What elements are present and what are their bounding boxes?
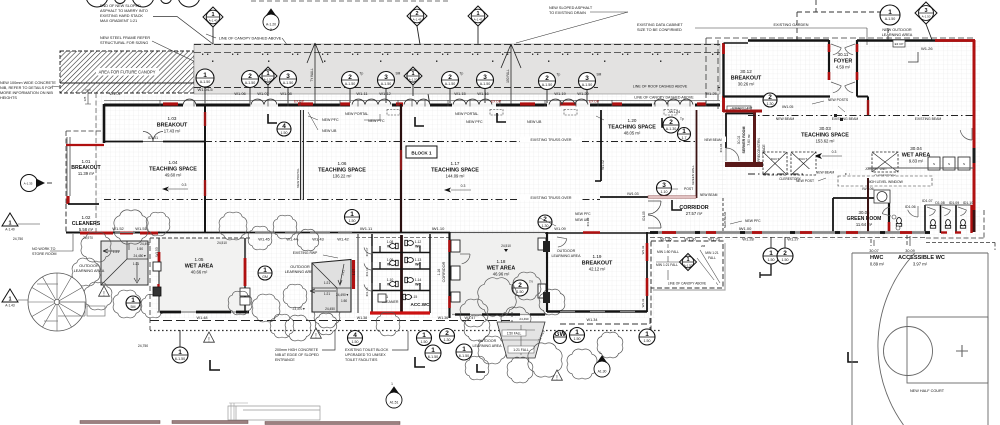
svg-text:A-1.50: A-1.50 [283, 81, 294, 85]
svg-text:5.58 m²: 5.58 m² [79, 227, 94, 232]
svg-text:2: 2 [415, 11, 418, 17]
svg-text:30.09: 30.09 [905, 249, 915, 253]
svg-text:A1.51: A1.51 [390, 401, 399, 405]
svg-text:ID1.15: ID1.15 [365, 287, 369, 296]
svg-text:W1.06: W1.06 [234, 91, 246, 96]
svg-text:30.04: 30.04 [910, 146, 922, 151]
svg-text:CORRIDOR: CORRIDOR [442, 261, 446, 282]
svg-text:NEW PFC: NEW PFC [745, 219, 761, 223]
svg-text:EXISTING GARDEN: EXISTING GARDEN [773, 23, 808, 27]
svg-text:1.14: 1.14 [415, 278, 422, 282]
svg-text:S: S [963, 162, 965, 166]
svg-text:3: 3 [384, 74, 388, 81]
svg-text:1:50: 1:50 [341, 299, 347, 303]
svg-text:A-1.20: A-1.20 [266, 23, 276, 27]
svg-text:1:21: 1:21 [113, 250, 119, 254]
svg-text:NEW 100mm WIDE CONCRETE: NEW 100mm WIDE CONCRETE [0, 81, 56, 85]
svg-text:1: 1 [178, 349, 182, 356]
svg-text:ID1.01: ID1.01 [148, 136, 158, 140]
svg-text:2: 2 [783, 250, 787, 257]
svg-text:LEARNING AREA: LEARNING AREA [882, 33, 913, 37]
svg-text:W1.45: W1.45 [258, 237, 270, 242]
svg-text:NEW BEAM: NEW BEAM [700, 193, 718, 197]
svg-text:2: 2 [545, 75, 549, 82]
svg-text:ASPHALT TO MARRY INTO: ASPHALT TO MARRY INTO [100, 9, 148, 13]
svg-text:W1.25: W1.25 [705, 91, 717, 96]
svg-text:24,490: 24,490 [519, 317, 529, 321]
svg-text:9.83 m²: 9.83 m² [909, 159, 924, 164]
svg-text:1.50: 1.50 [349, 219, 356, 223]
svg-text:Tp: Tp [557, 73, 561, 77]
svg-text:OUTDOOR: OUTDOOR [290, 265, 310, 269]
svg-text:GW: GW [554, 331, 566, 338]
svg-text:1.02: 1.02 [82, 215, 91, 220]
svg-text:W1.02: W1.02 [601, 160, 605, 170]
svg-text:1.13: 1.13 [415, 258, 422, 262]
svg-text:11.64 m²: 11.64 m² [856, 222, 873, 227]
svg-text:30.03: 30.03 [819, 126, 831, 131]
svg-text:A-1.50: A-1.50 [381, 82, 392, 86]
svg-text:W1.09: W1.09 [554, 226, 566, 231]
svg-text:1:21: 1:21 [324, 292, 330, 296]
svg-text:NEW SLOPED ASPHALT: NEW SLOPED ASPHALT [549, 6, 593, 10]
svg-text:EXISTING DATA CABINET: EXISTING DATA CABINET [637, 23, 683, 27]
svg-text:48.05 m²: 48.05 m² [624, 131, 641, 136]
svg-text:1:21: 1:21 [324, 281, 330, 285]
svg-text:1.50: 1.50 [281, 131, 288, 135]
svg-text:NIB, REFER TO DETAILS FOR: NIB, REFER TO DETAILS FOR [0, 86, 53, 90]
svg-text:1: 1 [431, 347, 435, 354]
svg-text:LEARNING AREA: LEARNING AREA [473, 344, 503, 348]
svg-text:1.17: 1.17 [451, 161, 460, 166]
svg-text:GREEN WALL: GREEN WALL [691, 165, 695, 185]
svg-text:27.57 m²: 27.57 m² [686, 211, 703, 216]
svg-text:125: 125 [83, 96, 87, 101]
svg-text:Tp: Tp [360, 72, 364, 76]
svg-text:LINE OF CANOPY DASHED ABOVE: LINE OF CANOPY DASHED ABOVE [219, 37, 282, 41]
svg-text:ID1.05: ID1.05 [642, 211, 646, 221]
svg-text:W1.42: W1.42 [337, 237, 349, 242]
svg-text:S: S [933, 162, 935, 166]
svg-text:1: 1 [575, 329, 579, 336]
svg-text:NEW PORTAL: NEW PORTAL [455, 112, 478, 116]
svg-text:1: 1 [411, 71, 414, 77]
svg-text:W1.08: W1.08 [280, 91, 292, 96]
svg-text:STORE ROOM: STORE ROOM [32, 252, 57, 256]
svg-text:ENTRANCE: ENTRANCE [275, 358, 295, 362]
svg-text:ID1.10: ID1.10 [963, 201, 973, 205]
svg-text:30.11: 30.11 [838, 52, 849, 57]
svg-text:1:21: 1:21 [133, 262, 139, 266]
svg-text:46.96 m²: 46.96 m² [493, 272, 510, 277]
svg-text:1.50: 1.50 [574, 337, 581, 341]
svg-text:A-1.45: A-1.45 [474, 17, 483, 21]
svg-text:1: 1 [682, 128, 686, 135]
svg-text:W1.01: W1.01 [109, 91, 121, 96]
svg-text:A-1.35: A-1.35 [24, 182, 33, 186]
svg-text:W1.11: W1.11 [356, 91, 368, 96]
svg-text:NIB AT EDGE OF SLOPED: NIB AT EDGE OF SLOPED [275, 353, 319, 357]
svg-text:24,750: 24,750 [138, 344, 148, 348]
svg-text:WC: WC [415, 263, 421, 267]
svg-text:ID1.09: ID1.09 [949, 201, 959, 205]
svg-text:MIN 1:50 FALL: MIN 1:50 FALL [657, 250, 679, 254]
svg-text:1.12: 1.12 [415, 240, 422, 244]
svg-text:30.07: 30.07 [869, 249, 879, 253]
svg-text:A-1.50: A-1.50 [542, 83, 553, 87]
svg-text:STRUCTURAL FOR SIZING: STRUCTURAL FOR SIZING [100, 41, 148, 45]
svg-text:W1.34: W1.34 [587, 318, 598, 322]
svg-text:1:50: 1:50 [137, 247, 143, 251]
svg-text:1: 1 [599, 351, 601, 355]
svg-text:A-1.30: A-1.30 [666, 127, 677, 131]
svg-text:W1.51: W1.51 [135, 226, 147, 231]
svg-text:NEW BEAM: NEW BEAM [723, 211, 727, 228]
svg-text:1:21 FALL: 1:21 FALL [513, 348, 529, 352]
svg-text:1: 1 [476, 11, 479, 17]
svg-text:23,370▼: 23,370▼ [293, 307, 306, 311]
svg-text:EXISTING RWP: EXISTING RWP [293, 251, 318, 255]
svg-text:1.30: 1.30 [542, 224, 549, 228]
svg-text:24,490▼: 24,490▼ [336, 293, 349, 297]
svg-text:A-1.50: A-1.50 [245, 81, 256, 85]
svg-text:EX DP: EX DP [491, 100, 502, 104]
svg-text:IW1.00: IW1.00 [739, 226, 752, 231]
svg-text:A-1.40: A-1.40 [209, 18, 218, 22]
svg-text:6-1.50: 6-1.50 [459, 354, 469, 358]
svg-text:W1.12: W1.12 [379, 91, 391, 96]
svg-text:NEW HALF COURT: NEW HALF COURT [910, 389, 945, 393]
svg-text:49.60 m²: 49.60 m² [165, 173, 182, 178]
svg-text:NEW OUTDOOR: NEW OUTDOOR [882, 28, 912, 32]
svg-text:TOILET FACILITIES: TOILET FACILITIES [345, 358, 378, 362]
svg-text:NEW UB: NEW UB [527, 120, 542, 124]
svg-text:24,450▼: 24,450▼ [134, 254, 147, 258]
svg-text:30.02: 30.02 [737, 136, 741, 145]
svg-text:UPGRADED TO UNISEX: UPGRADED TO UNISEX [345, 353, 386, 357]
svg-text:24,450: 24,450 [325, 307, 335, 311]
svg-text:EXISTING BEAM: EXISTING BEAM [832, 117, 859, 121]
svg-text:4: 4 [282, 123, 286, 130]
svg-text:BLOCK 1: BLOCK 1 [411, 151, 432, 156]
svg-text:NEW PFC: NEW PFC [466, 120, 483, 124]
svg-text:1.03: 1.03 [168, 116, 177, 121]
svg-text:NEW PORTAL: NEW PORTAL [345, 112, 368, 116]
svg-text:2: 2 [448, 74, 452, 81]
svg-text:W1.48: W1.48 [197, 316, 208, 320]
svg-text:NO WORK TO: NO WORK TO [32, 247, 56, 251]
svg-text:1.20: 1.20 [628, 118, 637, 123]
svg-text:EXISTING TRUSS OVER: EXISTING TRUSS OVER [530, 138, 571, 142]
svg-text:1.07: 1.07 [352, 269, 356, 275]
svg-text:MORE INFORMATION ON NIB: MORE INFORMATION ON NIB [0, 91, 53, 95]
svg-text:W1.19: W1.19 [554, 91, 566, 96]
svg-text:1.06: 1.06 [338, 161, 347, 166]
svg-text:1: 1 [686, 257, 689, 263]
svg-text:3.97 m²: 3.97 m² [913, 262, 928, 267]
svg-text:1: 1 [769, 250, 773, 257]
svg-text:EXISTING BEAM: EXISTING BEAM [915, 117, 942, 121]
svg-text:3: 3 [483, 74, 487, 81]
svg-text:A-1.50: A-1.50 [445, 82, 456, 86]
svg-text:JOINERY UNIT: JOINERY UNIT [732, 106, 753, 110]
svg-text:30.26 m²: 30.26 m² [738, 82, 755, 87]
svg-text:1.50: 1.50 [768, 258, 775, 262]
svg-text:W1.38: W1.38 [357, 316, 367, 320]
svg-text:136.22 m²: 136.22 m² [333, 174, 352, 179]
svg-text:A-1.40: A-1.40 [5, 228, 15, 232]
svg-text:W1.36: W1.36 [438, 316, 448, 320]
svg-text:Tp: Tp [460, 72, 464, 76]
svg-text:IW1.11: IW1.11 [360, 226, 373, 231]
svg-text:0.89 m²: 0.89 m² [870, 262, 885, 267]
svg-text:ID1.04: ID1.04 [719, 143, 723, 152]
svg-text:3: 3 [924, 8, 927, 14]
svg-text:4.59 m²: 4.59 m² [836, 65, 851, 70]
svg-text:1: 1 [266, 71, 269, 77]
svg-text:1: 1 [645, 331, 649, 338]
svg-text:A-1.50: A-1.50 [582, 83, 593, 87]
svg-text:1.50: 1.50 [644, 339, 651, 343]
svg-text:W1.33: W1.33 [641, 298, 645, 307]
svg-text:LINE OF ROOF DASHED ABOVE: LINE OF ROOF DASHED ABOVE [633, 85, 688, 89]
svg-text:LEARNING AREA: LEARNING AREA [552, 254, 582, 258]
svg-text:2: 2 [270, 28, 272, 32]
svg-text:ACCESSIBLE WC: ACCESSIBLE WC [898, 255, 945, 261]
svg-text:2: 2 [768, 94, 772, 101]
svg-text:A-1.50: A-1.50 [345, 82, 356, 86]
svg-text:HIGH LEVEL WINDOW: HIGH LEVEL WINDOW [867, 180, 903, 184]
svg-text:1: 1 [8, 297, 11, 303]
svg-text:40.66 m²: 40.66 m² [191, 270, 208, 275]
svg-text:NEW PORTAL: NEW PORTAL [296, 168, 300, 188]
svg-text:2: 2 [248, 73, 252, 80]
svg-text:EX DP: EX DP [589, 100, 600, 104]
svg-text:EXISTING HARD STACK: EXISTING HARD STACK [100, 14, 143, 18]
svg-text:3: 3 [662, 182, 666, 189]
svg-text:24,490: 24,490 [140, 242, 150, 246]
svg-text:MIN 1:21 FALL: MIN 1:21 FALL [656, 263, 678, 267]
svg-text:Tp: Tp [680, 117, 684, 121]
svg-text:W1.15: W1.15 [454, 91, 466, 96]
svg-text:2: 2 [669, 119, 673, 126]
svg-text:144.09 m²: 144.09 m² [446, 174, 465, 179]
svg-text:MAX GRADIENT 1:21: MAX GRADIENT 1:21 [100, 19, 137, 23]
svg-text:FALL: FALL [708, 256, 716, 260]
svg-text:D1.08: D1.08 [935, 201, 944, 205]
svg-text:1: 1 [391, 382, 393, 386]
svg-text:HWC: HWC [870, 255, 883, 261]
svg-text:4: 4 [353, 332, 357, 339]
svg-text:S: S [948, 162, 950, 166]
svg-text:SERVER ROOM: SERVER ROOM [742, 127, 746, 154]
svg-text:1: 1 [211, 12, 214, 18]
svg-text:153.62 m²: 153.62 m² [816, 139, 835, 144]
svg-text:1.18: 1.18 [497, 259, 506, 264]
svg-text:WC: WC [415, 245, 421, 249]
svg-text:3: 3 [286, 73, 290, 80]
svg-text:0.3: 0.3 [182, 183, 187, 187]
svg-text:1.05: 1.05 [195, 257, 204, 262]
svg-text:NEW BEAM: NEW BEAM [704, 138, 722, 142]
svg-text:1.30: 1.30 [767, 102, 774, 106]
svg-text:A-1.50: A-1.50 [480, 82, 491, 86]
svg-text:DUCT: DUCT [771, 157, 779, 161]
svg-text:A-1.45: A-1.45 [413, 17, 422, 21]
svg-text:JW1.24: JW1.24 [668, 110, 680, 114]
svg-text:LINE OF CANOPY ABOVE: LINE OF CANOPY ABOVE [668, 282, 706, 286]
svg-text:A-1.50: A-1.50 [200, 80, 211, 84]
svg-text:SIZE TO BE CONFIRMED: SIZE TO BE CONFIRMED [637, 28, 682, 32]
svg-text:1:50 FALL: 1:50 FALL [507, 332, 522, 336]
svg-text:PRECONSTRN: PRECONSTRN [757, 138, 761, 162]
svg-text:DUCT: DUCT [799, 157, 807, 161]
svg-text:1: 1 [131, 297, 135, 304]
svg-text:W1.16: W1.16 [477, 91, 489, 96]
svg-text:NEW PFC: NEW PFC [322, 118, 339, 122]
svg-text:1.10: 1.10 [661, 190, 668, 194]
svg-text:AREA FOR FUTURE CANOPY: AREA FOR FUTURE CANOPY [99, 70, 156, 75]
svg-text:200mm HIGH CONCRETE: 200mm HIGH CONCRETE [275, 348, 319, 352]
svg-text:NEW POSTS: NEW POSTS [828, 98, 849, 102]
svg-text:NEW PFC: NEW PFC [368, 119, 385, 123]
svg-text:OUTDOOR: OUTDOOR [79, 264, 99, 268]
svg-text:W1.20: W1.20 [577, 91, 589, 96]
svg-text:1: 1 [203, 72, 207, 79]
svg-text:OUTDOOR: OUTDOOR [557, 249, 576, 253]
svg-text:2: 2 [348, 74, 352, 81]
svg-text:5M: 5M [131, 305, 136, 309]
svg-text:150 FALL: 150 FALL [506, 69, 510, 83]
svg-text:1.01: 1.01 [82, 159, 91, 164]
svg-text:6-1.50: 6-1.50 [175, 357, 185, 361]
svg-text:1.30: 1.30 [444, 338, 451, 342]
svg-text:E3 CP: E3 CP [895, 42, 904, 46]
svg-text:ID1.07: ID1.07 [922, 199, 933, 203]
svg-text:GM: GM [262, 275, 268, 279]
svg-text:2: 2 [518, 282, 522, 289]
svg-text:42.12 m²: 42.12 m² [589, 267, 606, 272]
svg-text:ID1.02: ID1.02 [586, 217, 590, 226]
svg-text:1.16: 1.16 [437, 269, 441, 276]
svg-text:6-1.50: 6-1.50 [428, 355, 438, 359]
svg-text:NEW BEAM: NEW BEAM [816, 171, 835, 175]
svg-text:NEW BEAM: NEW BEAM [776, 117, 795, 121]
svg-text:17.43 m²: 17.43 m² [164, 129, 181, 134]
svg-text:IW1.05: IW1.05 [782, 105, 793, 109]
svg-text:LEARNING AREA: LEARNING AREA [285, 270, 316, 274]
svg-text:ACC.WC: ACC.WC [411, 302, 431, 307]
svg-text:1: 1 [8, 221, 11, 227]
svg-text:SM: SM [396, 72, 401, 76]
svg-text:HEIGHTS: HEIGHTS [0, 96, 17, 100]
svg-text:W1.04-5: W1.04-5 [197, 87, 213, 92]
svg-text:NEW POST: NEW POST [796, 179, 814, 183]
svg-text:A-1.50: A-1.50 [684, 263, 693, 267]
svg-text:A-1.50: A-1.50 [264, 77, 273, 81]
svg-text:7.60 m²: 7.60 m² [747, 133, 751, 145]
svg-text:NEW UB: NEW UB [322, 129, 337, 133]
svg-text:1.04: 1.04 [169, 160, 178, 165]
svg-text:11.39 m²: 11.39 m² [78, 171, 95, 176]
svg-text:W1.32: W1.32 [641, 245, 645, 254]
svg-text:30.12: 30.12 [740, 69, 752, 74]
svg-text:TY WALL: TY WALL [310, 68, 314, 82]
svg-text:1.7: 1.7 [682, 136, 687, 140]
svg-text:1: 1 [263, 267, 267, 274]
svg-text:NEW STEEL FRAME REFER: NEW STEEL FRAME REFER [100, 36, 150, 40]
svg-text:1: 1 [462, 346, 466, 353]
svg-text:A-1.50: A-1.50 [922, 14, 931, 18]
svg-text:0.3: 0.3 [461, 184, 466, 188]
svg-text:1.50: 1.50 [517, 290, 524, 294]
svg-text:1.50: 1.50 [782, 258, 789, 262]
svg-text:NEW PFC: NEW PFC [575, 212, 591, 216]
svg-text:1: 1 [888, 9, 892, 16]
svg-text:24,750: 24,750 [13, 237, 23, 241]
svg-text:1.50: 1.50 [421, 340, 428, 344]
svg-text:24,510: 24,510 [501, 244, 511, 248]
svg-text:W1.26: W1.26 [921, 46, 933, 51]
svg-text:3: 3 [585, 75, 589, 82]
svg-text:2M: 2M [701, 244, 706, 248]
svg-text:2: 2 [543, 216, 547, 223]
svg-text:A-1.50: A-1.50 [409, 77, 418, 81]
svg-text:EXISTING TRUSS OVER: EXISTING TRUSS OVER [530, 196, 571, 200]
svg-text:W1.53: W1.53 [155, 247, 159, 256]
svg-text:IW1.10: IW1.10 [432, 226, 445, 231]
svg-text:W1.07: W1.07 [257, 91, 269, 96]
svg-text:A1.30: A1.30 [598, 370, 607, 374]
svg-text:24,510: 24,510 [217, 241, 227, 245]
svg-text:1: 1 [350, 211, 354, 218]
svg-text:1: 1 [422, 332, 426, 339]
svg-text:A-1.43: A-1.43 [5, 304, 15, 308]
svg-text:ID1.06: ID1.06 [905, 205, 916, 209]
svg-text:END OF NEW SLOPED: END OF NEW SLOPED [100, 4, 141, 8]
svg-text:WC: WC [415, 283, 421, 287]
svg-text:IW1.03: IW1.03 [627, 192, 638, 196]
svg-text:A-1.50: A-1.50 [885, 17, 896, 21]
svg-text:1.50: 1.50 [352, 340, 359, 344]
svg-text:TO EXISTING DRAIN: TO EXISTING DRAIN [549, 11, 586, 15]
svg-text:1.19: 1.19 [593, 254, 602, 259]
svg-text:SM: SM [597, 73, 602, 77]
svg-text:0.3: 0.3 [832, 150, 837, 154]
svg-text:2: 2 [445, 330, 449, 337]
svg-text:POST: POST [684, 187, 693, 191]
svg-text:EXISTING TOILET BLOCK: EXISTING TOILET BLOCK [345, 348, 389, 352]
svg-text:EX DP: EX DP [294, 100, 305, 104]
svg-text:MIN 1:21: MIN 1:21 [705, 251, 719, 255]
